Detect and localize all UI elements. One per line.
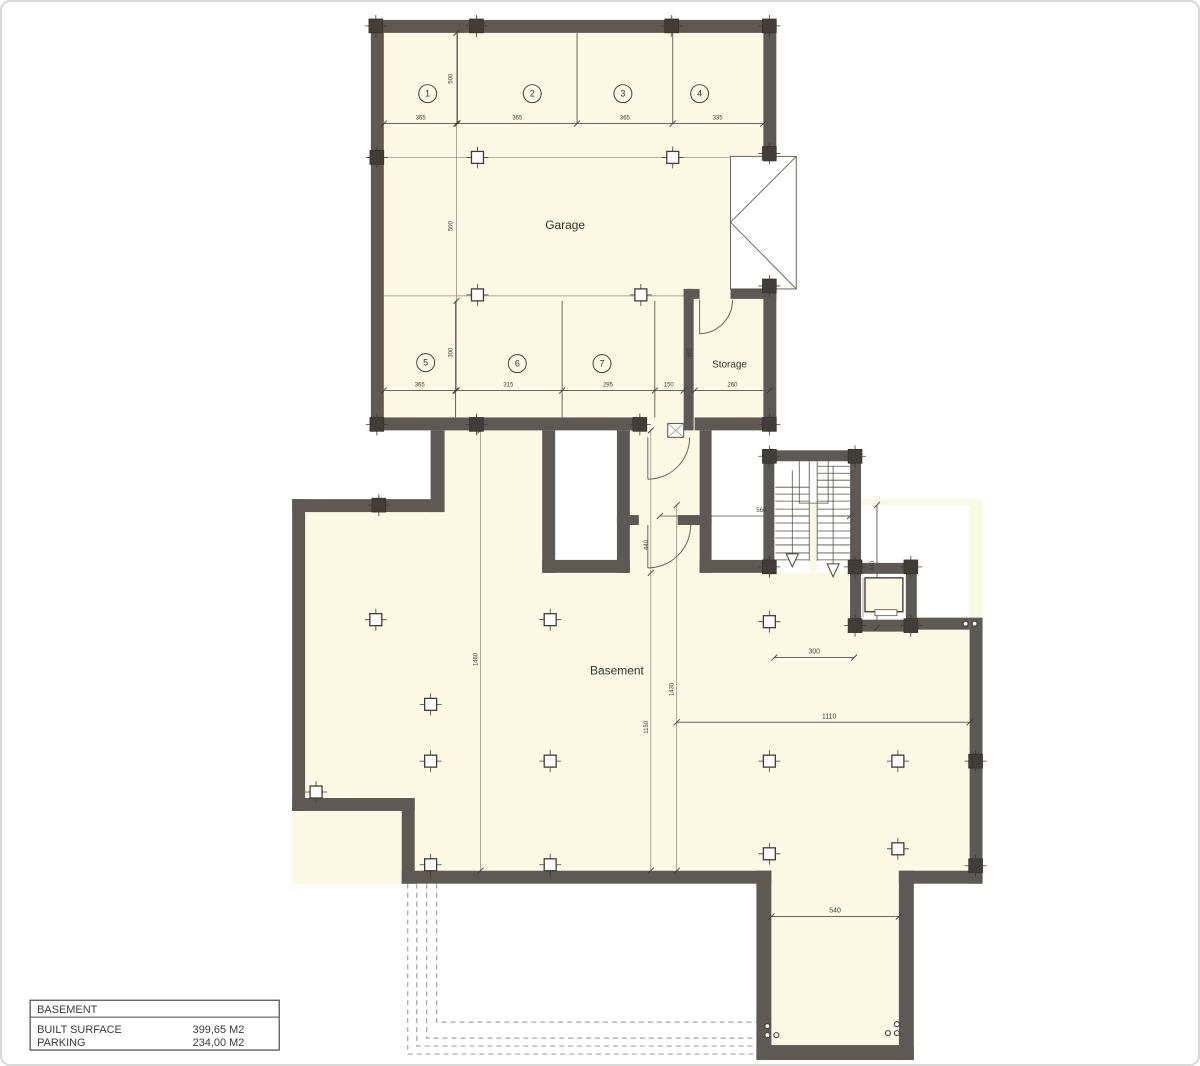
svg-text:560: 560 bbox=[756, 508, 767, 514]
svg-text:365: 365 bbox=[512, 116, 523, 122]
elevator bbox=[863, 578, 903, 618]
svg-text:150: 150 bbox=[664, 383, 675, 389]
basement-floor-plan: 1 2 3 4 5 6 7 Garage Storage Basement 36… bbox=[2, 2, 1198, 1064]
svg-text:5: 5 bbox=[423, 358, 428, 368]
legend-row-value: 234,00 M2 bbox=[193, 1037, 245, 1049]
title-block: BASEMENT BUILT SURFACE 399,65 M2 PARKING… bbox=[30, 1000, 279, 1050]
svg-text:300: 300 bbox=[449, 347, 455, 358]
svg-text:295: 295 bbox=[603, 383, 614, 389]
svg-text:3: 3 bbox=[620, 89, 625, 99]
svg-text:7: 7 bbox=[600, 359, 605, 369]
floor-plan-canvas: 1 2 3 4 5 6 7 Garage Storage Basement 36… bbox=[0, 0, 1200, 1066]
svg-text:440: 440 bbox=[644, 539, 650, 550]
garage-label: Garage bbox=[545, 218, 585, 232]
svg-text:460: 460 bbox=[688, 347, 694, 358]
svg-text:335: 335 bbox=[713, 116, 724, 122]
svg-text:500: 500 bbox=[449, 73, 455, 84]
svg-text:260: 260 bbox=[728, 383, 739, 389]
duct-symbol bbox=[668, 423, 684, 437]
svg-text:365: 365 bbox=[620, 116, 631, 122]
svg-text:440: 440 bbox=[870, 560, 876, 571]
legend-row-value: 399,65 M2 bbox=[193, 1024, 245, 1036]
svg-text:365: 365 bbox=[416, 116, 427, 122]
svg-text:300: 300 bbox=[808, 649, 820, 656]
svg-text:315: 315 bbox=[503, 383, 514, 389]
svg-text:1460: 1460 bbox=[473, 652, 479, 666]
legend-row-label: BUILT SURFACE bbox=[37, 1024, 122, 1036]
svg-text:1: 1 bbox=[425, 89, 430, 99]
svg-text:500: 500 bbox=[449, 221, 455, 232]
legend-title: BASEMENT bbox=[37, 1004, 97, 1016]
basement-label: Basement bbox=[590, 663, 644, 677]
svg-text:540: 540 bbox=[829, 908, 841, 915]
svg-text:1110: 1110 bbox=[822, 713, 837, 720]
svg-text:1150: 1150 bbox=[644, 720, 650, 734]
svg-text:1430: 1430 bbox=[670, 682, 676, 696]
svg-text:6: 6 bbox=[515, 359, 520, 369]
svg-text:365: 365 bbox=[415, 383, 426, 389]
storage-label: Storage bbox=[712, 360, 747, 371]
legend-row-label: PARKING bbox=[37, 1037, 85, 1049]
svg-text:2: 2 bbox=[530, 89, 535, 99]
garage-door-symbol bbox=[731, 156, 797, 289]
terrace-dashed-outline bbox=[408, 884, 757, 1054]
svg-text:4: 4 bbox=[697, 89, 702, 99]
